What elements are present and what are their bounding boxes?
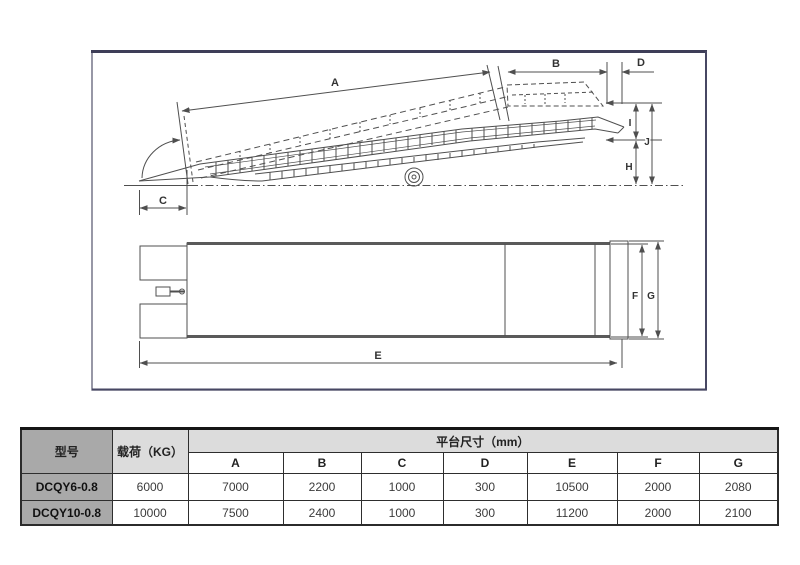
dim-label-j: J [644, 137, 650, 148]
dim-label-e: E [374, 350, 381, 362]
dim-label-c: C [159, 195, 167, 207]
header-dim-d: D [443, 453, 527, 474]
dim-label-f: F [632, 291, 638, 302]
cell-model: DCQY10-0.8 [21, 501, 112, 526]
cell-dim-d: 300 [443, 501, 527, 526]
cell-dim-d: 300 [443, 474, 527, 501]
cell-dim-c: 1000 [361, 501, 443, 526]
header-dim-a: A [188, 453, 283, 474]
header-dim-c: C [361, 453, 443, 474]
cell-dim-f: 2000 [617, 501, 699, 526]
cell-model: DCQY6-0.8 [21, 474, 112, 501]
header-model: 型号 [21, 429, 112, 474]
cell-load: 10000 [112, 501, 188, 526]
table-row: DCQY10-0.8 10000 7500 2400 1000 300 1120… [21, 501, 778, 526]
dim-label-g: G [647, 291, 655, 302]
header-load: 载荷（KG） [112, 429, 188, 474]
header-dim-b: B [283, 453, 361, 474]
cell-dim-a: 7500 [188, 501, 283, 526]
header-dim-e: E [527, 453, 617, 474]
cell-dim-e: 10500 [527, 474, 617, 501]
dim-label-d: D [637, 57, 645, 69]
cell-load: 6000 [112, 474, 188, 501]
cell-dim-b: 2200 [283, 474, 361, 501]
dim-label-b: B [552, 58, 560, 70]
cell-dim-g: 2080 [699, 474, 778, 501]
spec-table: 型号 载荷（KG） 平台尺寸（mm） A B C D E F G DCQY6-0… [20, 427, 779, 526]
dim-label-a: A [331, 77, 339, 89]
cell-dim-c: 1000 [361, 474, 443, 501]
spec-table-container: 型号 载荷（KG） 平台尺寸（mm） A B C D E F G DCQY6-0… [20, 427, 777, 526]
page: A B C D I J H [0, 0, 800, 565]
cell-dim-g: 2100 [699, 501, 778, 526]
header-platform-size: 平台尺寸（mm） [188, 429, 778, 453]
table-row: DCQY6-0.8 6000 7000 2200 1000 300 10500 … [21, 474, 778, 501]
dim-label-i: I [629, 118, 632, 129]
cell-dim-f: 2000 [617, 474, 699, 501]
cell-dim-b: 2400 [283, 501, 361, 526]
dim-label-h: H [625, 162, 632, 173]
cell-dim-e: 11200 [527, 501, 617, 526]
header-dim-f: F [617, 453, 699, 474]
cell-dim-a: 7000 [188, 474, 283, 501]
header-dim-g: G [699, 453, 778, 474]
technical-drawing: A B C D I J H [0, 0, 800, 422]
